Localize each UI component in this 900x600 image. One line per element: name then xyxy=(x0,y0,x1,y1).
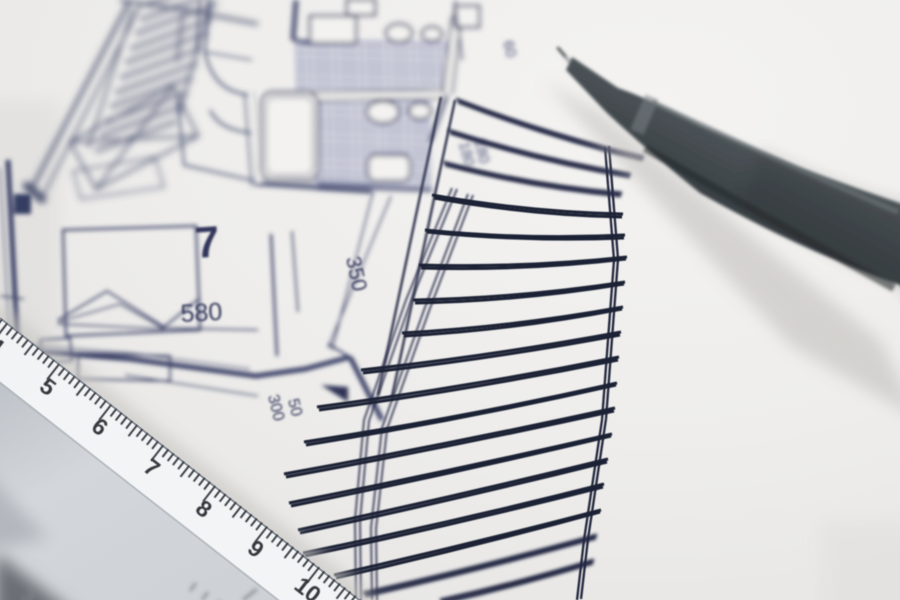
svg-text:580: 580 xyxy=(180,298,223,328)
svg-text:7: 7 xyxy=(193,217,221,268)
